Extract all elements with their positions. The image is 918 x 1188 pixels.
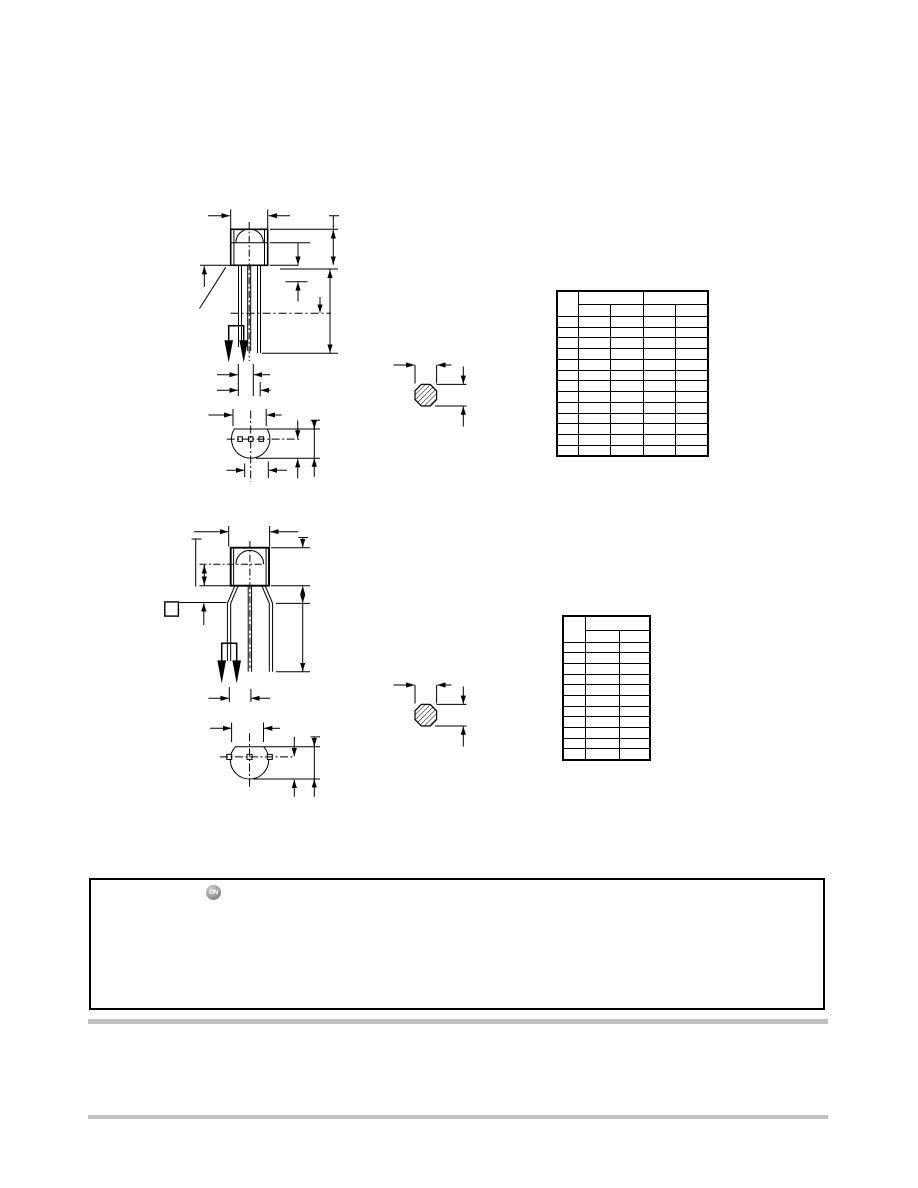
- table-cell: [557, 392, 578, 403]
- table-cell: [643, 370, 675, 381]
- table-cell: [675, 413, 708, 424]
- table-cell: [578, 413, 610, 424]
- table-cell: [675, 327, 708, 338]
- table-cell: [675, 424, 708, 435]
- table-cell: [643, 304, 675, 316]
- table-cell: [557, 435, 578, 446]
- table-cell: [557, 445, 578, 456]
- table-cell: [578, 327, 610, 338]
- table-cell: [619, 642, 650, 653]
- table-cell: [619, 706, 650, 717]
- table-cell: [585, 706, 619, 717]
- table-cell: [585, 674, 619, 685]
- table-cell: [585, 663, 619, 674]
- table-cell: [563, 653, 585, 664]
- table-cell: [578, 445, 610, 456]
- table-cell: [578, 291, 643, 304]
- table-cell: [563, 749, 585, 760]
- table-cell: [675, 359, 708, 370]
- section-arrow: [239, 340, 248, 362]
- table-cell: [619, 738, 650, 749]
- horizontal-rule-1: [88, 1019, 828, 1024]
- table-cell: [557, 316, 578, 327]
- table-cell: [610, 338, 643, 349]
- table-cell: [675, 402, 708, 413]
- document-page: ON: [0, 0, 918, 1188]
- table-cell: [610, 359, 643, 370]
- table-cell: [557, 370, 578, 381]
- table-cell: [578, 349, 610, 360]
- table-cell: [675, 381, 708, 392]
- table-cell: [578, 435, 610, 446]
- table-cell: [563, 728, 585, 739]
- table-cell: [578, 392, 610, 403]
- table-cell: [585, 695, 619, 706]
- table-cell: [578, 338, 610, 349]
- table-cell: [619, 630, 650, 642]
- table-cell: [563, 674, 585, 685]
- table-cell: [557, 413, 578, 424]
- table-cell: [585, 630, 619, 642]
- table-cell: [675, 316, 708, 327]
- section-arrow: [224, 340, 233, 362]
- table-cell: [610, 316, 643, 327]
- table-cell: [643, 413, 675, 424]
- table-cell: [675, 338, 708, 349]
- table-cell: [578, 370, 610, 381]
- table-cell: [578, 424, 610, 435]
- figure1-front-view: [200, 210, 340, 397]
- table-cell: [619, 728, 650, 739]
- table-cell: [557, 338, 578, 349]
- table-cell: [619, 663, 650, 674]
- section-arrow: [232, 660, 241, 683]
- table-cell: [675, 370, 708, 381]
- on-semiconductor-logo: ON: [206, 885, 221, 900]
- seating-plane-leader: [200, 267, 226, 308]
- table-cell: [585, 749, 619, 760]
- table-cell: [675, 445, 708, 456]
- dimension-table-2: [562, 615, 651, 761]
- table-cell: [610, 370, 643, 381]
- table-cell: [563, 663, 585, 674]
- table-cell: [557, 291, 578, 316]
- table-cell: [557, 349, 578, 360]
- table-cell: [675, 304, 708, 316]
- lead-section-hatched: [415, 384, 437, 406]
- table-cell: [610, 413, 643, 424]
- table-cell: [563, 738, 585, 749]
- table-cell: [578, 381, 610, 392]
- table-cell: [585, 685, 619, 696]
- figure2-front-view: [165, 526, 310, 702]
- table-cell: [585, 728, 619, 739]
- table-cell: [610, 435, 643, 446]
- horizontal-rule-2: [88, 1115, 828, 1120]
- table-cell: [585, 717, 619, 728]
- table-cell: [585, 653, 619, 664]
- table-cell: [585, 738, 619, 749]
- table-cell: [563, 706, 585, 717]
- table-cell: [557, 381, 578, 392]
- figure1-bottom-view: [209, 409, 321, 482]
- table-cell: [578, 304, 610, 316]
- figure1-lead-section: [394, 365, 467, 427]
- figure2-bottom-view: [210, 723, 320, 797]
- table-cell: [578, 316, 610, 327]
- table-cell: [563, 695, 585, 706]
- table-cell: [585, 642, 619, 653]
- section-arrow: [217, 660, 226, 683]
- table-cell: [643, 359, 675, 370]
- table-cell: [675, 392, 708, 403]
- table-cell: [610, 349, 643, 360]
- table-cell: [557, 402, 578, 413]
- table-cell: [643, 327, 675, 338]
- table-cell: [578, 402, 610, 413]
- table-cell: [643, 392, 675, 403]
- table-cell: [610, 424, 643, 435]
- note-reference-box: [165, 602, 179, 616]
- table-cell: [619, 685, 650, 696]
- table-cell: [643, 445, 675, 456]
- table-cell: [643, 402, 675, 413]
- table-cell: [610, 327, 643, 338]
- table-cell: [643, 424, 675, 435]
- table-cell: [557, 327, 578, 338]
- table-cell: [619, 674, 650, 685]
- table-cell: [643, 381, 675, 392]
- table-cell: [563, 616, 585, 642]
- table-cell: [675, 349, 708, 360]
- table-cell: [563, 642, 585, 653]
- table-cell: [610, 392, 643, 403]
- package-body: [231, 548, 269, 586]
- table-cell: [563, 717, 585, 728]
- on-logo-text: ON: [209, 889, 218, 896]
- table-cell: [643, 349, 675, 360]
- table-cell: [610, 304, 643, 316]
- table-cell: [619, 717, 650, 728]
- table-cell: [619, 653, 650, 664]
- footer-box: [89, 878, 825, 1010]
- table-cell: [610, 445, 643, 456]
- table-cell: [675, 435, 708, 446]
- table-cell: [619, 749, 650, 760]
- table-cell: [578, 359, 610, 370]
- table-cell: [643, 338, 675, 349]
- dimension-table-1: [556, 290, 709, 457]
- table-cell: [557, 359, 578, 370]
- table-cell: [619, 695, 650, 706]
- table-cell: [610, 402, 643, 413]
- table-cell: [610, 381, 643, 392]
- section-cut-line: [222, 643, 237, 661]
- table-cell: [585, 616, 650, 630]
- table-cell: [643, 291, 708, 304]
- figure2-lead-section: [394, 685, 467, 747]
- table-cell: [563, 685, 585, 696]
- table-cell: [643, 316, 675, 327]
- table-cell: [557, 424, 578, 435]
- table-cell: [643, 435, 675, 446]
